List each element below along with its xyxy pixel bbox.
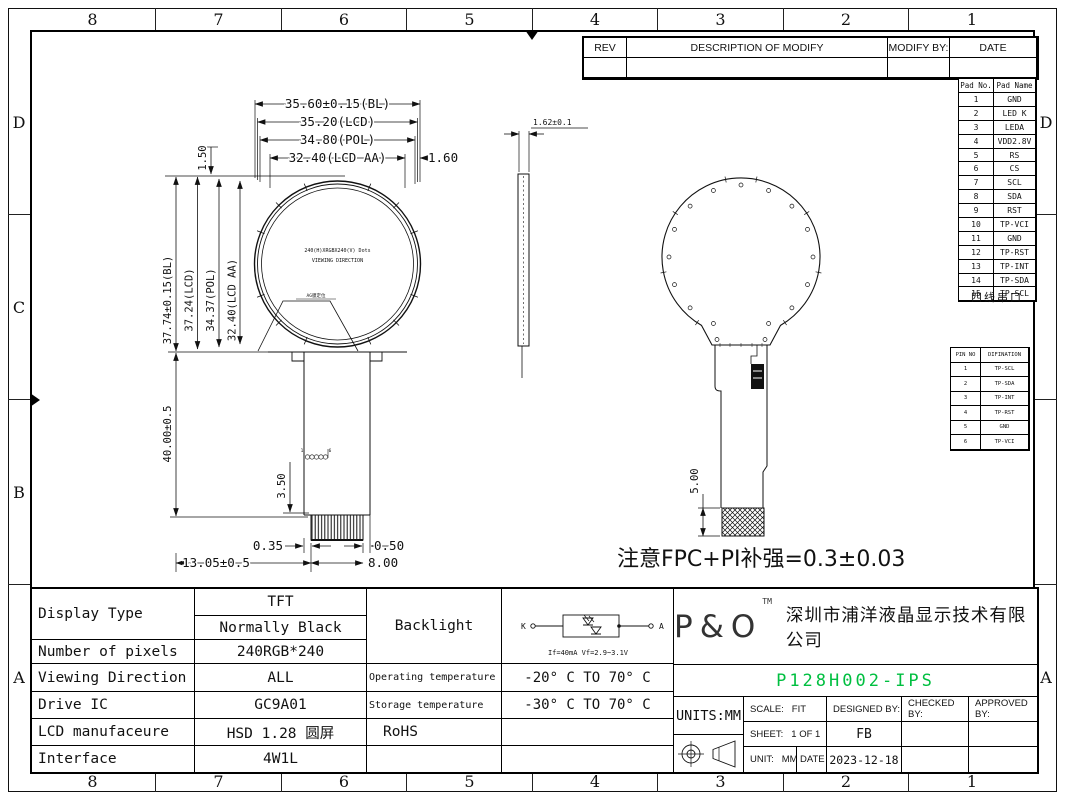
projection-symbol-cell	[674, 735, 744, 772]
dim-lcd-height: 37.24(LCD)	[184, 268, 196, 331]
dim-stiffener-length: 5.00	[689, 468, 701, 493]
storage-temp-value: -30° C TO 70° C	[502, 692, 674, 719]
grid-col-label: 7	[156, 8, 282, 30]
spec-value: TFT	[195, 589, 367, 616]
operating-temp-label: Operating temperature	[367, 664, 502, 692]
designed-by-value: FB	[827, 722, 902, 747]
dim-stiffener: 3.50	[276, 473, 288, 498]
company-cell: P&OTM 深圳市浦洋液晶显示技术有限公司	[674, 589, 1037, 665]
spec-label: Interface	[32, 746, 195, 772]
date-value: 2023-12-18	[827, 747, 902, 772]
backlight-circuit-cell: K A If=40mA Vf=2.9~3.1V	[502, 589, 674, 664]
projection-symbol	[675, 736, 743, 772]
empty-cell	[902, 722, 969, 747]
solder-pads	[667, 183, 815, 342]
spec-label: LCD manufaceure	[32, 719, 195, 746]
rohs-label: RoHS	[367, 719, 502, 746]
spec-value: HSD 1.28 圆屏	[195, 719, 367, 746]
dim-bl-height: 37.74±0.15(BL)	[162, 256, 174, 345]
grid-col-label: 6	[282, 8, 407, 30]
backlight-spec-text: If=40mA Vf=2.9~3.1V	[547, 649, 628, 657]
operating-temp-value: -20° C TO 70° C	[502, 664, 674, 692]
empty-cell	[969, 722, 1037, 747]
grid-row-label: A	[8, 585, 30, 770]
dim-top-offset: 1.50	[197, 145, 209, 170]
cathode-label: K	[521, 622, 526, 631]
finger-label-right: 6	[329, 448, 332, 454]
dim-fpc-bottom: 13.05±0.5	[182, 555, 250, 570]
fpc-connector-back	[722, 508, 764, 536]
touch-tail-wire	[751, 345, 757, 364]
viewing-direction-text: VIEWING DIRECTION	[312, 258, 363, 264]
company-logo: P&OTM	[674, 609, 772, 645]
scale-cell: SCALE:FIT	[744, 697, 827, 722]
part-number: P128H002-IPS	[674, 665, 1037, 697]
led-symbols	[583, 615, 601, 634]
dim-aa-height: 32.40(LCD AA)	[227, 259, 239, 341]
date-label-cell: DATE	[797, 747, 827, 772]
dim-gap-right: 0.50	[374, 538, 404, 553]
backlight-label: Backlight	[367, 589, 502, 664]
empty-cell	[502, 719, 674, 746]
dim-pol-width: 34.80(POL)	[300, 132, 375, 147]
approved-by-cell: APPROVED BY:	[969, 697, 1037, 722]
grid-row-label: B	[8, 400, 30, 585]
dim-fpc-length: 40.00±0.5	[162, 406, 174, 463]
grid-row-label	[1035, 215, 1057, 400]
dim-rim: 1.60	[428, 150, 458, 165]
dim-lcd-width: 35.20(LCD)	[300, 114, 375, 129]
dim-bl-width: 35.60±0.15(BL)	[285, 96, 390, 111]
empty-cell	[902, 747, 969, 772]
dim-gap-left: 0.35	[253, 538, 283, 553]
company-name: 深圳市浦洋液晶显示技术有限公司	[786, 602, 1037, 652]
spec-label: Number of pixels	[32, 640, 195, 664]
spec-value: Normally Black	[195, 616, 367, 640]
empty-cell	[969, 747, 1037, 772]
units-label: UNITS:MM	[674, 697, 744, 735]
fpc-reinforcement-note: 注意FPC+PI补强=0.3±0.03	[617, 541, 905, 573]
finger-label-left: 1	[301, 448, 304, 454]
drawing-area: 35.60±0.15(BL) 35.20(LCD) 34.80(POL) 32.…	[30, 30, 1035, 587]
grid-row-label: C	[8, 215, 30, 400]
grid-col-label: 4	[533, 8, 658, 30]
empty-cell	[367, 746, 502, 772]
grid-col-label: 5	[407, 8, 533, 30]
spec-label: Drive IC	[32, 692, 195, 719]
spec-value: GC9A01	[195, 692, 367, 719]
spec-label: Viewing Direction	[32, 664, 195, 692]
spec-value: ALL	[195, 664, 367, 692]
back-view: 5.00	[661, 177, 822, 536]
designed-by-cell: DESIGNED BY:	[827, 697, 902, 722]
empty-cell	[502, 746, 674, 772]
grid-col-label: 1	[909, 8, 1035, 30]
anode-label: A	[659, 622, 664, 631]
front-view: 35.60±0.15(BL) 35.20(LCD) 34.80(POL) 32.…	[162, 96, 458, 572]
touch-connector	[751, 364, 764, 389]
unit-cell: UNIT:MM	[744, 747, 797, 772]
storage-temp-label: Storage temperature	[367, 692, 502, 719]
dim-thickness: 1.62±0.1	[533, 118, 572, 127]
sheet-cell: SHEET:1 OF 1	[744, 722, 827, 747]
grid-row-label	[1035, 400, 1057, 585]
gold-fingers-mark	[304, 449, 328, 459]
grid-col-label: 2	[784, 8, 909, 30]
checked-by-cell: CHECKED BY:	[902, 697, 969, 722]
grid-col-label: 8	[30, 8, 156, 30]
fpc-connector-front	[311, 515, 363, 540]
grid-row-label: D	[8, 30, 30, 215]
side-view: 1.62±0.1	[504, 118, 588, 378]
dim-connector-width: 8.00	[368, 555, 398, 570]
spec-label: Display Type	[32, 589, 195, 640]
drawing-sheet: 8 7 6 5 4 3 2 1 8 7 6 5 4 3 2 1 D C B A …	[0, 0, 1065, 800]
ag-film-label: AG膜定位	[307, 292, 326, 299]
circle-ticks	[257, 184, 418, 345]
grid-col-label: 3	[658, 8, 784, 30]
spec-title-block: Display Type Number of pixels Viewing Di…	[30, 587, 1039, 774]
spec-value: 240RGB*240	[195, 640, 367, 664]
spec-value: 4W1L	[195, 746, 367, 772]
dim-aa-width: 32.40(LCD AA)	[289, 150, 387, 165]
backlight-circuit: K A If=40mA Vf=2.9~3.1V	[503, 589, 673, 663]
resolution-text: 240(H)XRGBX240(V) Dots	[304, 248, 370, 254]
dim-pol-height: 34.37(POL)	[205, 268, 217, 331]
